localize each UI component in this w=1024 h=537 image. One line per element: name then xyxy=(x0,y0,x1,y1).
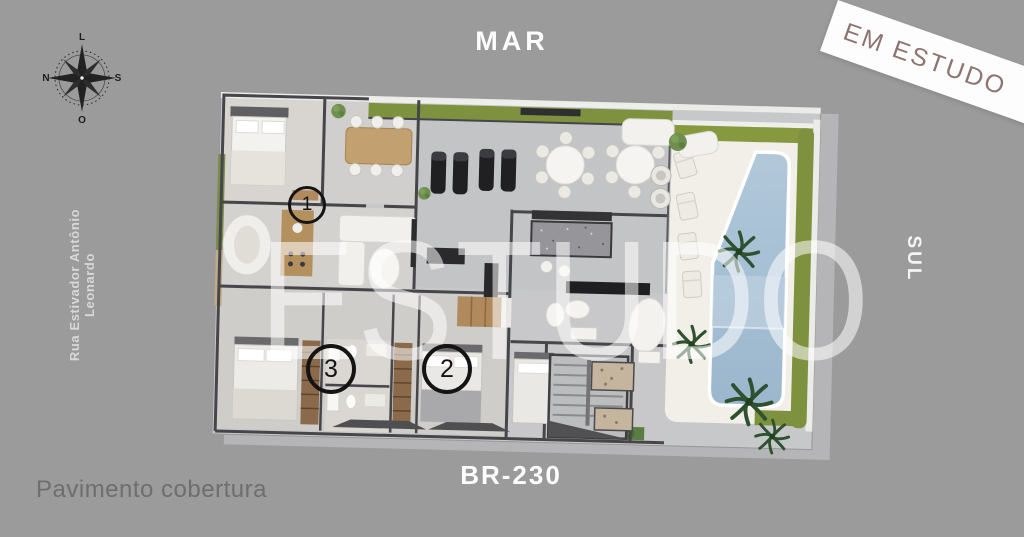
bed-unit3 xyxy=(232,336,298,420)
modular-sofa xyxy=(622,119,675,146)
unit-3-badge: 3 xyxy=(306,344,356,394)
dumbbell-rack xyxy=(566,281,650,295)
floor-plan xyxy=(0,0,1024,537)
organic-stool xyxy=(565,300,589,319)
unit-3-number: 3 xyxy=(324,355,338,384)
unit-1-badge: 1 xyxy=(288,186,326,224)
page: { "page": {"width": 1024, "height": 537,… xyxy=(0,0,1024,537)
unit-2-badge: 2 xyxy=(422,344,472,394)
unit-2-number: 2 xyxy=(440,355,454,384)
kitchen-unit2 xyxy=(457,296,512,327)
unit-1-number: 1 xyxy=(302,194,313,216)
bed-master xyxy=(229,106,289,185)
dining-set xyxy=(345,115,413,177)
plan-rotated-group xyxy=(211,92,839,460)
gym-machine xyxy=(427,247,465,264)
